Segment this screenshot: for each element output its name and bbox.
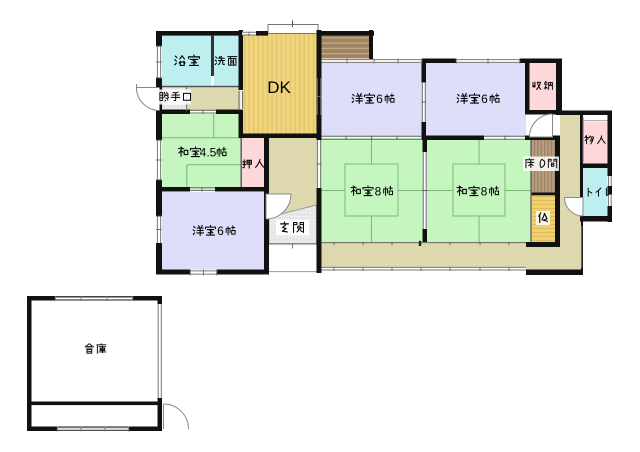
svg-text:8: 8 (375, 185, 382, 199)
svg-text:6: 6 (376, 92, 383, 106)
svg-text:8: 8 (481, 185, 488, 199)
svg-text:6: 6 (217, 224, 224, 238)
svg-text:DK: DK (267, 78, 291, 97)
svg-text:6: 6 (481, 92, 488, 106)
svg-text:4.5: 4.5 (200, 146, 217, 160)
